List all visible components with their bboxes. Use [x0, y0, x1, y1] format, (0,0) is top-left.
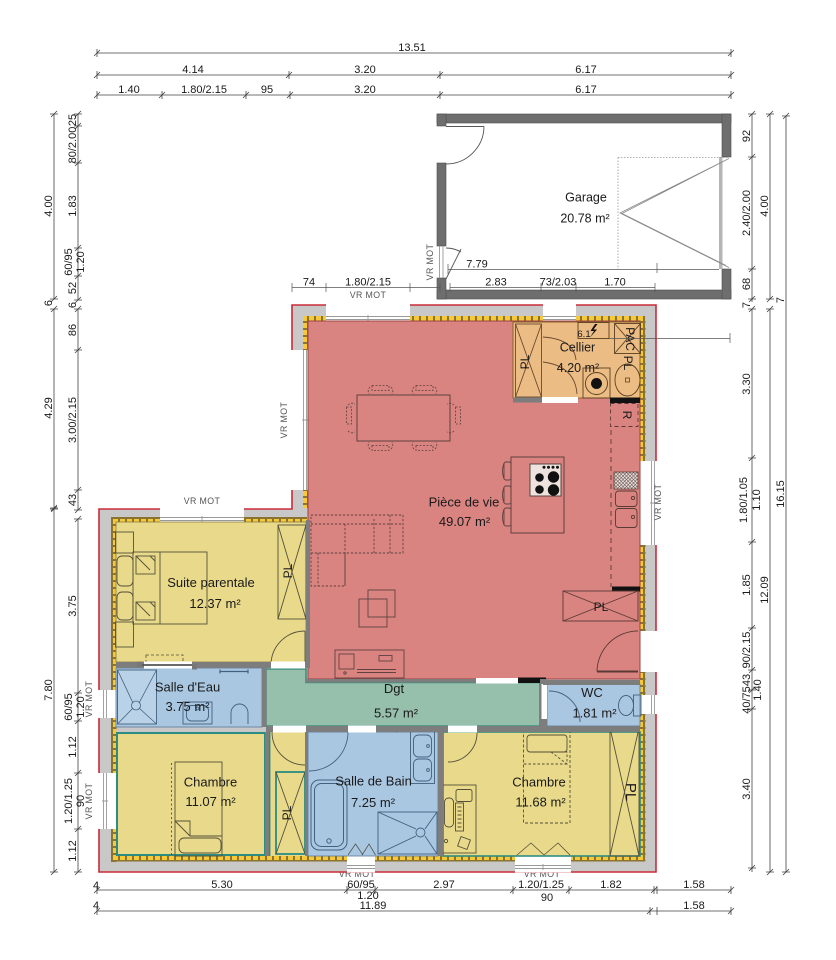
svg-text:5.57 m²: 5.57 m²: [374, 706, 419, 721]
svg-text:6.17: 6.17: [575, 84, 596, 96]
svg-text:PL: PL: [281, 563, 295, 578]
svg-text:49.07 m²: 49.07 m²: [439, 514, 491, 529]
svg-text:6: 6: [67, 302, 79, 308]
svg-text:1.85: 1.85: [741, 574, 753, 595]
svg-text:1.83: 1.83: [67, 195, 79, 216]
svg-text:VR MOT: VR MOT: [350, 290, 387, 300]
svg-text:86: 86: [67, 324, 79, 336]
svg-text:6: 6: [43, 300, 55, 306]
svg-text:PL: PL: [280, 805, 294, 820]
svg-text:60/95: 60/95: [63, 693, 75, 721]
svg-text:VR MOT: VR MOT: [279, 401, 289, 438]
svg-text:16.15: 16.15: [775, 480, 787, 508]
svg-text:5.30: 5.30: [211, 879, 232, 891]
svg-text:VR MOT: VR MOT: [184, 496, 221, 506]
svg-text:2.40/2.00: 2.40/2.00: [741, 190, 753, 236]
svg-text:WC: WC: [581, 685, 603, 700]
svg-text:4.20 m²: 4.20 m²: [557, 361, 599, 375]
svg-text:68: 68: [741, 278, 753, 290]
svg-text:1.70: 1.70: [604, 277, 625, 289]
svg-text:95: 95: [261, 84, 273, 96]
svg-text:1.20/1.25: 1.20/1.25: [63, 778, 75, 824]
svg-text:1.20: 1.20: [75, 251, 87, 272]
svg-text:11.68 m²: 11.68 m²: [515, 795, 566, 810]
svg-text:3.20: 3.20: [354, 84, 375, 96]
svg-text:1.20/1.25: 1.20/1.25: [518, 879, 564, 891]
svg-text:Cellier: Cellier: [560, 341, 595, 355]
svg-text:4.00: 4.00: [759, 195, 771, 216]
svg-text:92: 92: [741, 130, 753, 142]
svg-text:1.80/2.15: 1.80/2.15: [181, 84, 227, 96]
svg-text:25: 25: [67, 114, 79, 126]
svg-text:60/95: 60/95: [63, 248, 75, 276]
svg-text:1.10: 1.10: [751, 489, 763, 510]
svg-text:3.40: 3.40: [741, 778, 753, 799]
svg-text:11.07 m²: 11.07 m²: [185, 794, 236, 809]
svg-text:7.80: 7.80: [43, 679, 55, 700]
svg-text:Salle de Bain: Salle de Bain: [335, 774, 412, 789]
svg-text:20.78 m²: 20.78 m²: [560, 212, 609, 226]
svg-text:1.82: 1.82: [600, 879, 621, 891]
svg-text:VR MOT: VR MOT: [425, 243, 435, 280]
svg-text:PL: PL: [622, 783, 639, 801]
svg-text:4.00: 4.00: [43, 195, 55, 216]
svg-text:7.25 m²: 7.25 m²: [351, 795, 396, 810]
svg-text:1.40: 1.40: [118, 84, 139, 96]
svg-text:Dgt: Dgt: [384, 681, 405, 696]
svg-text:43: 43: [67, 494, 79, 506]
svg-text:12.37 m²: 12.37 m²: [189, 596, 241, 611]
svg-text:13.51: 13.51: [398, 42, 426, 54]
svg-text:1.58: 1.58: [683, 900, 704, 912]
svg-text:VR MOT: VR MOT: [84, 782, 94, 819]
svg-text:52: 52: [67, 282, 79, 294]
svg-text:2.97: 2.97: [433, 879, 454, 891]
svg-text:Chambre: Chambre: [184, 775, 237, 790]
svg-text:1.58: 1.58: [683, 879, 704, 891]
svg-text:4.29: 4.29: [43, 397, 55, 418]
svg-text:VR MOT: VR MOT: [653, 483, 663, 520]
svg-text:2.83: 2.83: [485, 277, 506, 289]
svg-text:PL: PL: [621, 356, 635, 371]
svg-text:1.12: 1.12: [67, 840, 79, 861]
svg-text:73/2.03: 73/2.03: [540, 277, 577, 289]
svg-text:12.09: 12.09: [759, 576, 771, 604]
svg-text:Chambre: Chambre: [512, 775, 565, 790]
svg-text:Garage: Garage: [565, 191, 607, 205]
svg-text:1.80/2.15: 1.80/2.15: [345, 277, 391, 289]
svg-text:4.14: 4.14: [182, 64, 203, 76]
svg-text:90: 90: [541, 892, 553, 904]
svg-text:11.89: 11.89: [360, 900, 387, 912]
svg-text:Pièce de vie: Pièce de vie: [429, 495, 500, 510]
svg-text:80/2.00: 80/2.00: [67, 127, 79, 164]
svg-text:Suite parentale: Suite parentale: [167, 575, 254, 590]
svg-text:3.20: 3.20: [354, 64, 375, 76]
svg-text:1.81 m²: 1.81 m²: [572, 706, 617, 721]
svg-text:R: R: [620, 411, 634, 420]
svg-text:3.00/2.15: 3.00/2.15: [67, 397, 79, 443]
svg-text:1.80/1.05: 1.80/1.05: [738, 477, 750, 523]
svg-text:4: 4: [93, 880, 99, 892]
svg-text:Salle d'Eau: Salle d'Eau: [155, 680, 220, 695]
svg-text:6.1: 6.1: [577, 329, 590, 340]
svg-text:1.40: 1.40: [752, 679, 764, 700]
svg-text:VR MOT: VR MOT: [84, 680, 94, 717]
svg-text:PL: PL: [594, 600, 609, 614]
svg-text:90/2.15: 90/2.15: [741, 632, 753, 669]
svg-text:7: 7: [775, 297, 787, 303]
svg-text:PL: PL: [518, 354, 532, 369]
svg-text:4: 4: [93, 900, 99, 912]
svg-text:6.17: 6.17: [575, 64, 596, 76]
svg-text:3.75: 3.75: [67, 595, 79, 616]
svg-text:7: 7: [741, 302, 753, 308]
svg-text:3.30: 3.30: [741, 373, 753, 394]
svg-text:1.12: 1.12: [67, 736, 79, 757]
svg-text:PAC: PAC: [623, 327, 637, 351]
svg-text:74: 74: [303, 277, 315, 289]
svg-text:7.79: 7.79: [466, 259, 487, 271]
svg-text:3.75 m²: 3.75 m²: [165, 699, 210, 714]
